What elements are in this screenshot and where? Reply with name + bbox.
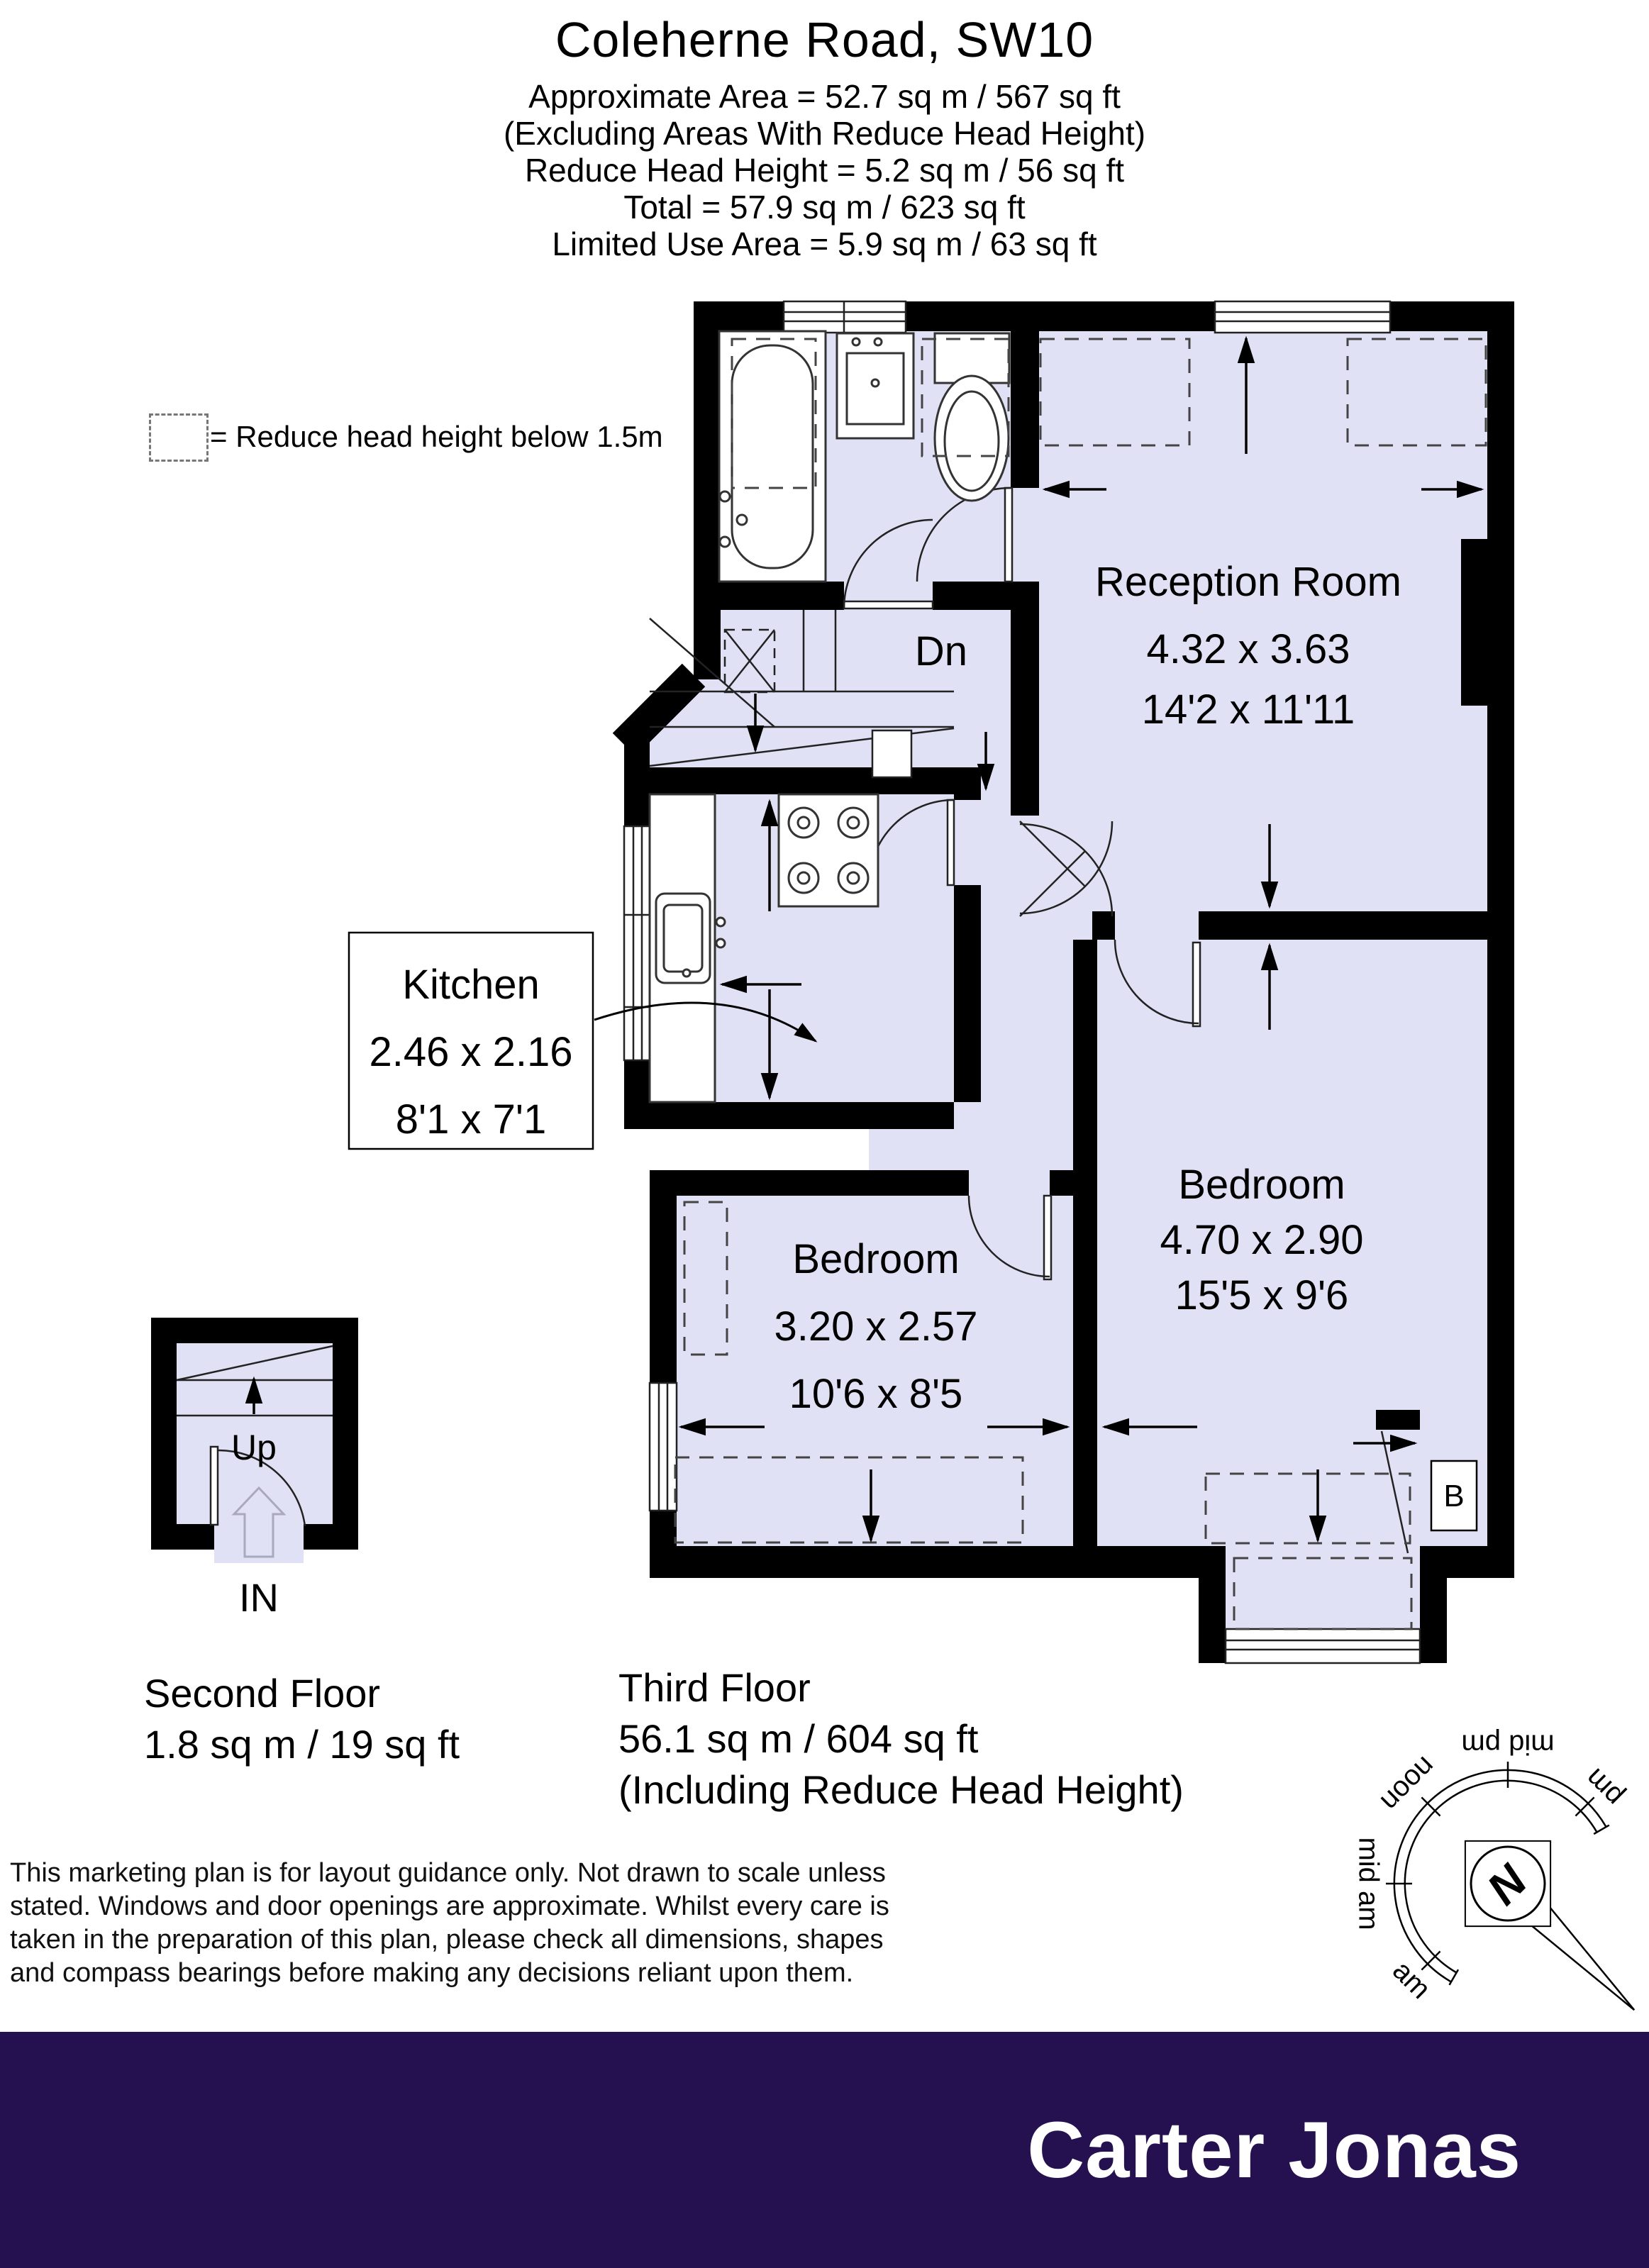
second-floor-area: 1.8 sq m / 19 sq ft: [144, 1719, 460, 1770]
second-floor-name: Second Floor: [144, 1668, 460, 1719]
bedroom-window: [650, 1383, 677, 1511]
kitchen-dim-imperial: 8'1 x 7'1: [396, 1096, 546, 1143]
boiler-label: B: [1443, 1479, 1464, 1513]
bedroom-large-name: Bedroom: [1178, 1162, 1345, 1208]
bedroom-small-dim-imperial: 10'6 x 8'5: [789, 1371, 963, 1417]
second-floor-plan: Up IN: [151, 1318, 358, 1620]
floorplan-page: Coleherne Road, SW10 Approximate Area = …: [0, 0, 1649, 2268]
compass-mid-pm-label: mid pm: [1461, 1729, 1554, 1760]
reception-dim-imperial: 14'2 x 11'11: [1142, 686, 1355, 733]
third-floor-plan: Reception Room 4.32 x 3.63 14'2 x 11'11 …: [349, 301, 1514, 1663]
kitchen-name: Kitchen: [402, 962, 539, 1008]
boiler: B: [1431, 1461, 1477, 1530]
toilet-icon: [935, 333, 1009, 501]
footer-bar: Carter Jonas: [0, 2032, 1649, 2268]
kitchen-dim-metric: 2.46 x 2.16: [370, 1029, 573, 1075]
entrance-label: IN: [239, 1575, 279, 1620]
third-floor-name: Third Floor: [618, 1662, 1184, 1713]
disclaimer: This marketing plan is for layout guidan…: [10, 1857, 889, 1990]
compass-mid-am-label: mid am: [1353, 1837, 1384, 1930]
reception-dim-metric: 4.32 x 3.63: [1147, 626, 1350, 672]
bedroom-large-dim-metric: 4.70 x 2.90: [1160, 1217, 1364, 1263]
bedroom-large-dim-imperial: 15'5 x 9'6: [1175, 1272, 1349, 1318]
third-floor-summary: Third Floor 56.1 sq m / 604 sq ft (Inclu…: [618, 1662, 1184, 1816]
bedroom-small-name: Bedroom: [792, 1236, 959, 1282]
bathtub-icon: [719, 331, 826, 582]
disclaimer-line: stated. Windows and door openings are ap…: [10, 1890, 889, 1923]
stairs-up-label: Up: [231, 1428, 277, 1467]
second-floor-summary: Second Floor 1.8 sq m / 19 sq ft: [144, 1668, 460, 1770]
hob-icon: [779, 794, 878, 906]
exterior-notch: [624, 1129, 869, 1170]
third-floor-area: 56.1 sq m / 604 sq ft: [618, 1713, 1184, 1764]
washbasin-icon: [837, 333, 914, 438]
bedroom-small-dim-metric: 3.20 x 2.57: [774, 1303, 978, 1350]
disclaimer-line: This marketing plan is for layout guidan…: [10, 1857, 889, 1890]
brand-logo: Carter Jonas: [1027, 2104, 1649, 2196]
reception-name: Reception Room: [1095, 559, 1401, 605]
kitchen-window: [624, 826, 651, 1060]
disclaimer-line: and compass bearings before making any d…: [10, 1957, 889, 1990]
third-floor-note: (Including Reduce Head Height): [618, 1764, 1184, 1816]
stairs-down-label: Dn: [915, 628, 967, 674]
reception-window: [1215, 301, 1390, 333]
disclaimer-line: taken in the preparation of this plan, p…: [10, 1923, 889, 1957]
bay-window: [1226, 1629, 1420, 1663]
bathroom-window: [784, 301, 906, 333]
